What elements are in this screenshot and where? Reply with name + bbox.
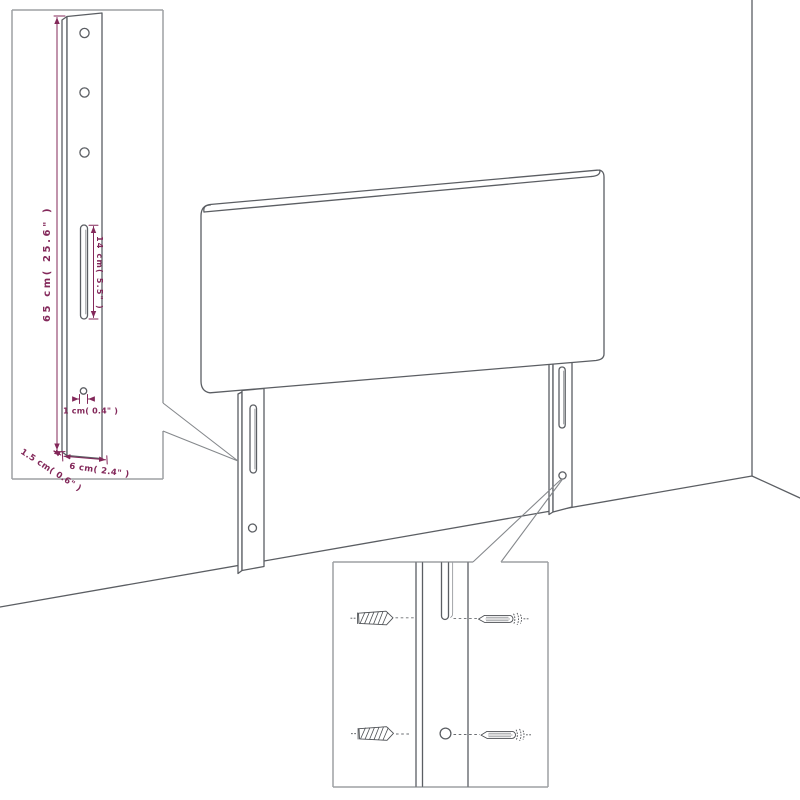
wood-screw-top-left	[351, 611, 394, 625]
wood-screw-bottom-left	[351, 727, 394, 741]
inset-detail-slot-inner-edge	[451, 563, 453, 618]
dimension-hole-label: 1 cm( 0.4" )	[63, 407, 118, 416]
assembly-diagram-page: 65 cm( 25.6" ) 14 cm( 5.5" ) 1 cm( 0.4" …	[0, 0, 800, 800]
floor-line-left	[0, 476, 752, 607]
screw-inset-box-edges	[333, 562, 548, 787]
inset-detail-slot	[442, 563, 449, 620]
inset-leg-slot	[81, 225, 88, 319]
inset-detail-screw-hole	[440, 728, 451, 739]
inset-leg-hole-2	[80, 88, 89, 97]
screw-detail-inset	[333, 479, 563, 788]
dimension-leg-height-label: 65 cm( 25.6" )	[42, 206, 53, 322]
headboard-panel	[201, 170, 604, 393]
right-leg-screw-hole	[559, 472, 566, 479]
leg-callout-wedge-lines	[163, 403, 238, 461]
inset-leg-side-face	[62, 17, 67, 456]
right-leg-slot	[559, 367, 565, 428]
assembly-diagram: 65 cm( 25.6" ) 14 cm( 5.5" ) 1 cm( 0.4" …	[0, 0, 800, 800]
left-leg-slot	[250, 405, 257, 473]
inset-leg-hole-1	[80, 28, 89, 37]
left-mounting-leg	[238, 389, 264, 574]
headboard-panel-outline	[201, 170, 604, 393]
inset-leg-hole-3	[80, 148, 89, 157]
left-leg-screw-hole	[249, 524, 257, 532]
right-mounting-leg	[549, 360, 572, 515]
floor-line-right	[752, 476, 800, 498]
inserted-screw-bottom-right	[481, 729, 532, 741]
dimension-slot-length-label: 14 cm( 5.5" )	[95, 236, 104, 310]
dimension-leg-width-label: 6 cm( 2.4" )	[69, 462, 131, 480]
inset-leg-small-hole	[80, 388, 86, 394]
inserted-screw-top-right	[479, 613, 530, 625]
